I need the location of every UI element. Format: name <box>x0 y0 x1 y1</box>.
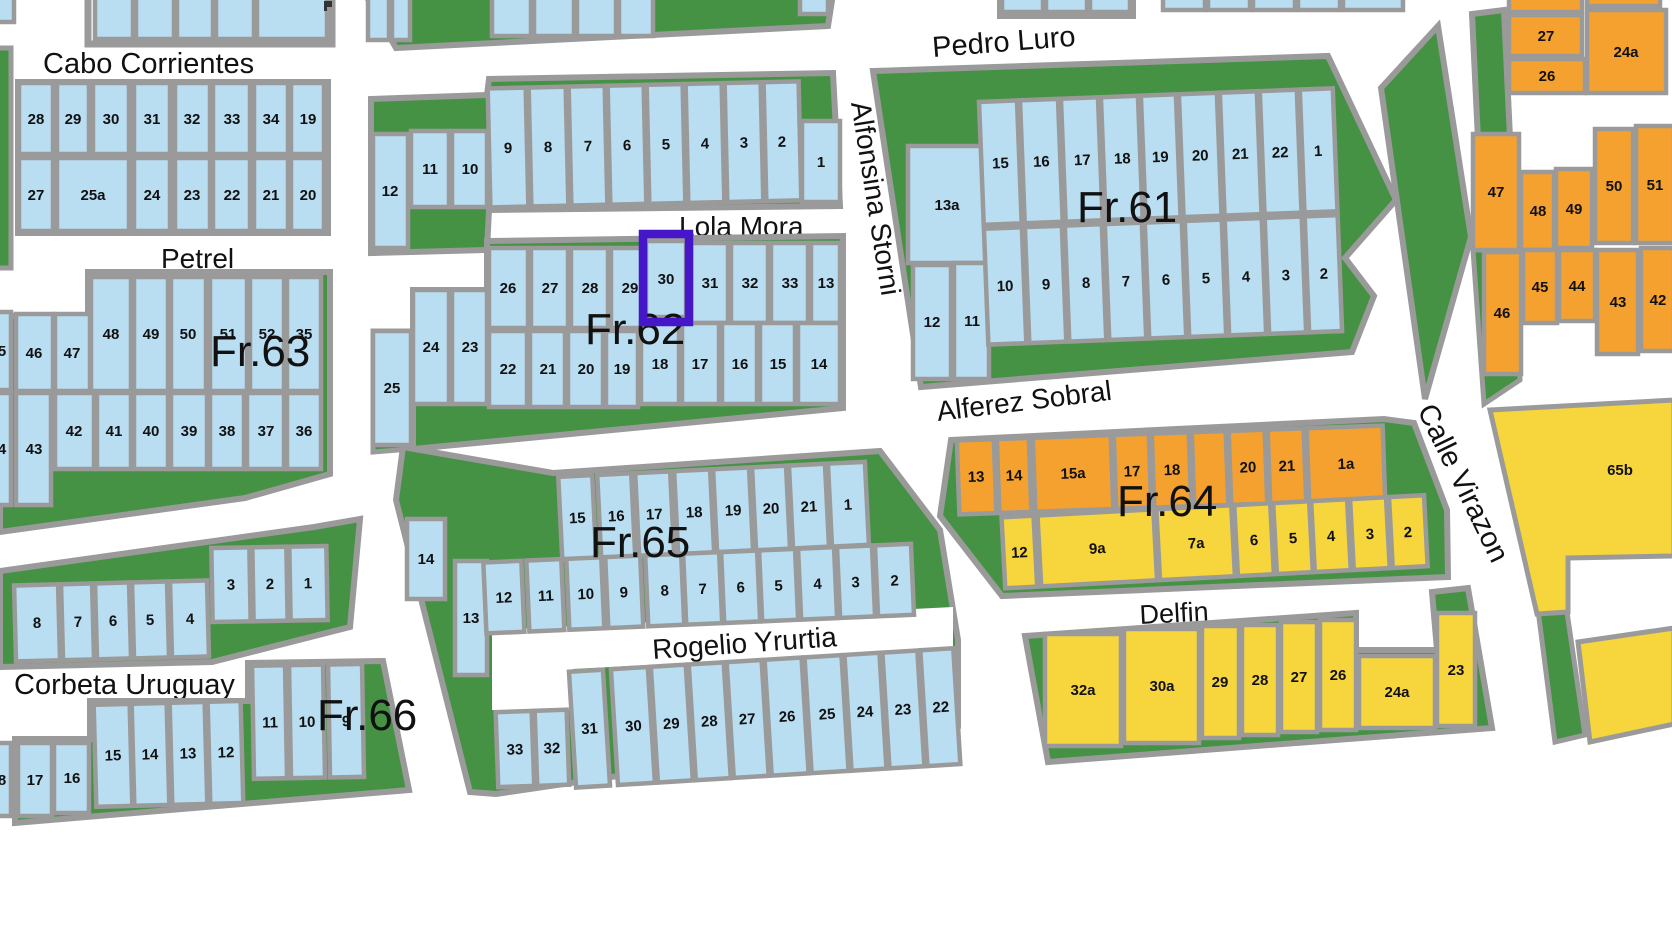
svg-text:25: 25 <box>818 706 836 724</box>
svg-text:15: 15 <box>569 510 586 528</box>
svg-text:4: 4 <box>813 576 823 593</box>
svg-text:3: 3 <box>227 577 236 594</box>
svg-text:26: 26 <box>1539 68 1556 85</box>
svg-text:5: 5 <box>662 136 671 153</box>
svg-text:20: 20 <box>300 187 317 204</box>
svg-text:15: 15 <box>104 747 121 764</box>
svg-text:22: 22 <box>224 187 241 204</box>
svg-text:13: 13 <box>179 745 196 762</box>
svg-text:31: 31 <box>144 111 161 128</box>
svg-text:19: 19 <box>724 502 741 520</box>
svg-text:5: 5 <box>0 343 6 360</box>
svg-text:36: 36 <box>296 423 313 440</box>
svg-text:31: 31 <box>581 720 599 738</box>
svg-text:2: 2 <box>890 572 899 589</box>
svg-text:42: 42 <box>1650 292 1667 309</box>
svg-text:19: 19 <box>1152 149 1169 167</box>
svg-text:20: 20 <box>578 361 595 378</box>
svg-text:28: 28 <box>582 280 599 297</box>
svg-text:17: 17 <box>692 356 709 373</box>
svg-text:13: 13 <box>463 610 480 627</box>
svg-text:14: 14 <box>418 551 435 568</box>
svg-text:6: 6 <box>109 613 118 630</box>
svg-text:7: 7 <box>584 138 593 155</box>
svg-text:Fr.62: Fr.62 <box>585 305 685 354</box>
svg-text:9: 9 <box>619 584 628 601</box>
svg-text:14: 14 <box>811 356 828 373</box>
svg-text:41: 41 <box>106 423 123 440</box>
svg-text:20: 20 <box>1239 459 1256 477</box>
svg-text:3: 3 <box>740 135 749 152</box>
svg-text:29: 29 <box>663 715 681 733</box>
svg-text:5: 5 <box>146 612 155 629</box>
svg-text:5: 5 <box>774 577 783 594</box>
svg-text:29: 29 <box>622 280 639 297</box>
svg-text:6: 6 <box>1249 532 1258 549</box>
svg-text:12: 12 <box>495 589 512 607</box>
svg-text:8: 8 <box>0 772 6 789</box>
svg-text:33: 33 <box>506 741 523 759</box>
svg-text:8: 8 <box>1082 275 1091 292</box>
svg-text:8: 8 <box>33 615 42 632</box>
svg-text:32: 32 <box>184 111 201 128</box>
svg-text:17: 17 <box>27 772 44 789</box>
svg-text:9: 9 <box>1042 276 1051 293</box>
svg-text:49: 49 <box>1566 201 1583 218</box>
svg-text:18: 18 <box>1114 150 1131 168</box>
svg-text:28: 28 <box>28 111 45 128</box>
svg-text:14: 14 <box>1005 467 1023 485</box>
svg-text:27: 27 <box>738 710 756 728</box>
svg-text:Fr.63: Fr.63 <box>210 327 310 376</box>
svg-text:4: 4 <box>0 441 7 458</box>
svg-text:7: 7 <box>698 581 707 598</box>
svg-text:7: 7 <box>74 614 83 631</box>
svg-text:Fr.61: Fr.61 <box>1077 183 1177 232</box>
svg-text:42: 42 <box>66 423 83 440</box>
svg-text:45: 45 <box>1532 279 1549 296</box>
svg-text:21: 21 <box>540 361 557 378</box>
svg-text:21: 21 <box>1232 146 1249 164</box>
svg-text:7a: 7a <box>1187 535 1205 553</box>
svg-text:6: 6 <box>623 137 632 154</box>
svg-text:32: 32 <box>543 740 560 758</box>
svg-text:23: 23 <box>894 701 912 719</box>
svg-text:11: 11 <box>538 587 555 605</box>
svg-text:5: 5 <box>1288 530 1297 547</box>
svg-text:24: 24 <box>144 187 161 204</box>
svg-text:15: 15 <box>770 356 787 373</box>
svg-text:Fr.66: Fr.66 <box>317 691 417 740</box>
svg-text:39: 39 <box>181 423 198 440</box>
svg-text:6: 6 <box>736 579 745 596</box>
svg-text:12: 12 <box>924 314 941 331</box>
svg-text:27: 27 <box>542 280 559 297</box>
svg-text:11: 11 <box>262 714 278 731</box>
svg-text:21: 21 <box>263 187 280 204</box>
svg-text:20: 20 <box>762 500 779 518</box>
svg-text:21: 21 <box>1278 458 1295 476</box>
svg-text:16: 16 <box>64 770 81 787</box>
svg-text:22: 22 <box>1272 144 1289 162</box>
svg-text:30: 30 <box>658 271 675 288</box>
svg-text:Fr.65: Fr.65 <box>590 518 690 567</box>
svg-text:49: 49 <box>143 326 160 343</box>
svg-text:26: 26 <box>778 708 796 726</box>
svg-text:10: 10 <box>462 161 479 178</box>
svg-text:3: 3 <box>1365 526 1374 543</box>
svg-text:1: 1 <box>817 154 825 171</box>
svg-text:43: 43 <box>1610 294 1627 311</box>
svg-text:21: 21 <box>800 498 817 516</box>
svg-text:29: 29 <box>1212 674 1229 691</box>
svg-text:51: 51 <box>1647 177 1664 194</box>
svg-text:47: 47 <box>64 345 81 362</box>
svg-text:24a: 24a <box>1613 44 1639 61</box>
svg-text:6: 6 <box>1162 272 1171 289</box>
svg-text:22: 22 <box>932 699 950 717</box>
svg-text:50: 50 <box>1606 178 1623 195</box>
svg-text:Fr.64: Fr.64 <box>1117 477 1217 526</box>
svg-text:11: 11 <box>422 161 438 178</box>
svg-text:10: 10 <box>996 278 1013 296</box>
svg-text:4: 4 <box>1241 269 1251 286</box>
svg-text:4: 4 <box>701 135 710 152</box>
svg-text:38: 38 <box>219 423 236 440</box>
svg-text:30: 30 <box>103 111 120 128</box>
svg-text:14: 14 <box>141 746 159 763</box>
svg-text:25a: 25a <box>80 187 106 204</box>
svg-text:30a: 30a <box>1149 678 1175 695</box>
svg-text:25: 25 <box>384 380 401 397</box>
svg-text:24a: 24a <box>1384 684 1410 701</box>
svg-text:10: 10 <box>577 586 594 604</box>
svg-text:26: 26 <box>500 280 517 297</box>
svg-text:48: 48 <box>1530 203 1547 220</box>
svg-text:12: 12 <box>217 744 234 761</box>
svg-text:13a: 13a <box>934 197 960 214</box>
svg-text:32: 32 <box>742 275 759 292</box>
svg-text:23: 23 <box>184 187 201 204</box>
svg-text:Corbeta Uruguay: Corbeta Uruguay <box>14 669 235 701</box>
svg-text:16: 16 <box>1033 153 1050 171</box>
svg-text:46: 46 <box>1494 305 1511 322</box>
svg-text:29: 29 <box>65 111 82 128</box>
svg-text:31: 31 <box>702 275 719 292</box>
svg-text:2: 2 <box>1319 266 1328 283</box>
svg-text:28: 28 <box>1252 672 1269 689</box>
svg-text:1: 1 <box>304 575 313 592</box>
svg-text:2: 2 <box>778 134 787 151</box>
svg-text:19: 19 <box>300 111 317 128</box>
svg-text:47: 47 <box>1488 184 1505 201</box>
svg-text:9: 9 <box>504 140 513 157</box>
svg-text:44: 44 <box>1569 278 1586 295</box>
svg-text:34: 34 <box>263 111 280 128</box>
svg-text:4: 4 <box>186 611 195 628</box>
svg-text:28: 28 <box>700 713 718 731</box>
svg-text:5: 5 <box>1201 270 1210 287</box>
svg-text:40: 40 <box>143 423 160 440</box>
svg-text:2: 2 <box>266 576 275 593</box>
svg-text:33: 33 <box>224 111 241 128</box>
svg-text:1a: 1a <box>1337 456 1355 474</box>
svg-text:1: 1 <box>843 497 852 514</box>
svg-text:Cabo Corrientes: Cabo Corrientes <box>43 48 254 80</box>
svg-text:8: 8 <box>660 582 669 599</box>
svg-text:9a: 9a <box>1089 540 1107 558</box>
svg-text:46: 46 <box>26 345 43 362</box>
svg-text:15: 15 <box>992 155 1009 173</box>
svg-text:1: 1 <box>1314 143 1323 160</box>
svg-text:15a: 15a <box>1060 465 1086 483</box>
svg-text:20: 20 <box>1192 147 1209 165</box>
svg-text:27: 27 <box>1291 669 1308 686</box>
svg-text:10: 10 <box>299 714 316 731</box>
svg-text:2: 2 <box>1403 524 1412 541</box>
svg-text:24: 24 <box>856 703 874 721</box>
svg-text:7: 7 <box>1122 273 1131 290</box>
svg-text:16: 16 <box>732 356 749 373</box>
svg-text:23: 23 <box>462 339 479 356</box>
svg-text:17: 17 <box>1074 152 1091 170</box>
svg-text:27: 27 <box>28 187 45 204</box>
svg-text:3: 3 <box>1281 267 1290 284</box>
svg-text:24: 24 <box>423 339 440 356</box>
svg-text:11: 11 <box>964 313 980 330</box>
svg-text:33: 33 <box>782 275 799 292</box>
svg-text:30: 30 <box>625 717 643 735</box>
svg-text:37: 37 <box>258 423 275 440</box>
svg-text:50: 50 <box>180 326 197 343</box>
svg-text:8: 8 <box>544 139 553 156</box>
svg-text:32a: 32a <box>1070 682 1096 699</box>
svg-text:18: 18 <box>652 356 669 373</box>
svg-text:27: 27 <box>1538 28 1555 45</box>
svg-text:13: 13 <box>968 468 985 486</box>
svg-text:13: 13 <box>818 275 835 292</box>
svg-text:48: 48 <box>103 326 120 343</box>
svg-text:43: 43 <box>26 441 43 458</box>
svg-text:23: 23 <box>1448 662 1465 679</box>
svg-text:12: 12 <box>1011 544 1029 562</box>
svg-text:65b: 65b <box>1607 462 1633 479</box>
svg-text:3: 3 <box>851 574 860 591</box>
svg-text:12: 12 <box>382 183 399 200</box>
svg-text:4: 4 <box>1326 528 1336 545</box>
svg-text:22: 22 <box>500 361 517 378</box>
svg-text:26: 26 <box>1330 667 1347 684</box>
svg-text:19: 19 <box>614 361 631 378</box>
